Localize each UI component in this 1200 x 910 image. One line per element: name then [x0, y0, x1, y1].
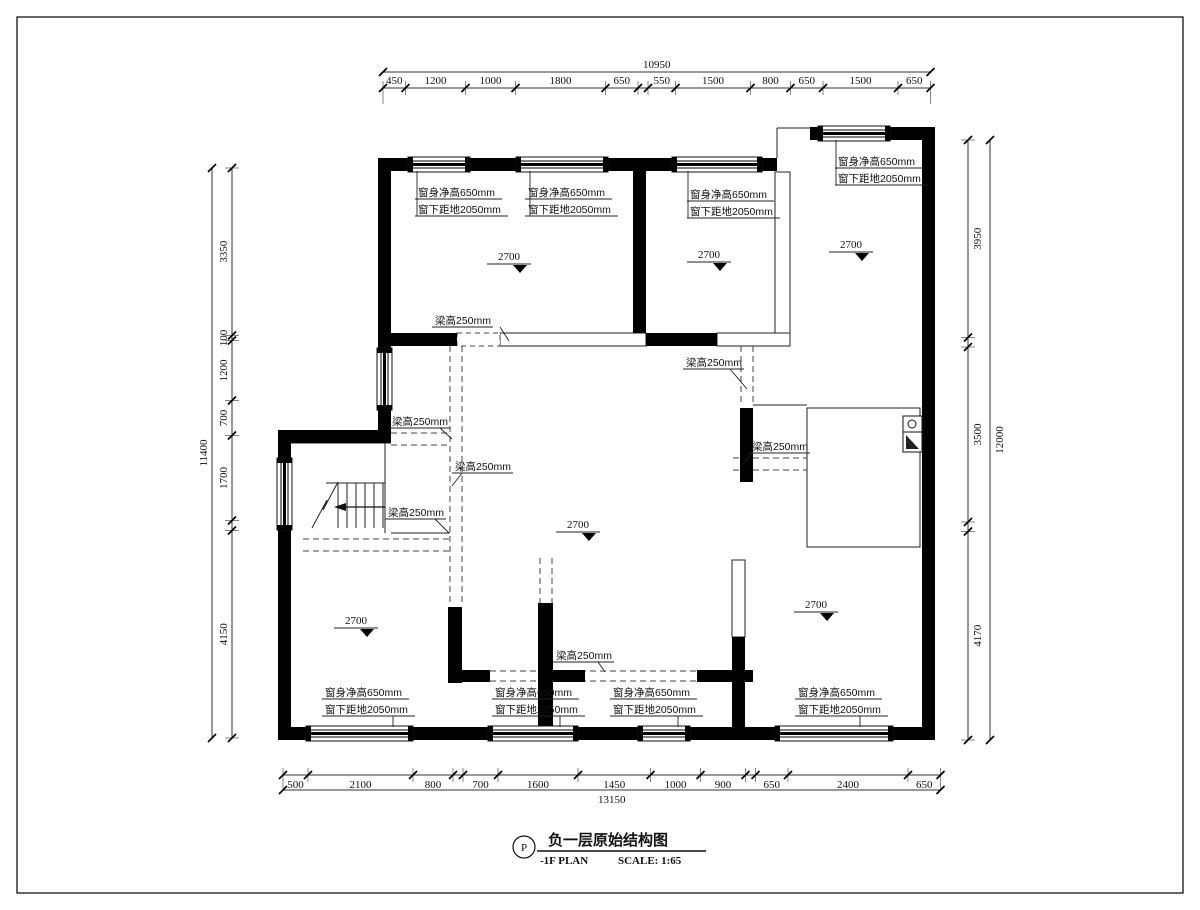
- dim-segment-label: 800: [425, 779, 442, 791]
- window-cap: [757, 157, 762, 172]
- window-cap: [277, 525, 292, 530]
- dimension-chain: 5002100800700160014501000900650240065013…: [279, 768, 945, 806]
- window-height-note: 窗身净高650mm: [495, 686, 572, 699]
- window-note: 窗身净高650mm窗下距地2050mm: [322, 686, 415, 716]
- dim-segment-label: 3950: [972, 227, 984, 250]
- window-symbol: [408, 157, 470, 172]
- elevation-triangle: [820, 613, 834, 621]
- beam-height-note: 梁高250mm: [686, 356, 742, 369]
- dim-segment-label: 1700: [218, 467, 230, 490]
- window-height-note: 窗身净高650mm: [798, 686, 875, 699]
- elevation-marker: 2700: [687, 249, 731, 271]
- wall: [578, 727, 638, 740]
- fixture-box: [903, 416, 922, 432]
- window-symbol: [377, 348, 392, 410]
- wall: [278, 443, 291, 458]
- dimension-chain: 39503500417012000: [961, 136, 1006, 744]
- window-sill-note: 窗下距地2050mm: [613, 703, 696, 716]
- stair-arrow-head: [334, 503, 346, 511]
- window-cap: [488, 726, 493, 741]
- window-height-note: 窗身净高650mm: [690, 188, 767, 201]
- dim-segment-label: 4170: [972, 624, 984, 647]
- note-leader: [452, 473, 462, 486]
- window-cap: [465, 157, 470, 172]
- wall: [553, 670, 585, 682]
- dim-segment-label: 4150: [218, 623, 230, 646]
- wall: [810, 127, 818, 140]
- window-cap: [408, 157, 413, 172]
- wall: [378, 333, 457, 346]
- wall: [633, 171, 646, 333]
- beam-note: 梁高250mm: [553, 649, 614, 672]
- dim-segment-label: 550: [654, 75, 671, 87]
- wall: [378, 171, 391, 348]
- window-note: 窗身净高650mm窗下距地2050mm: [795, 686, 888, 716]
- beam-note: 梁高250mm: [385, 506, 449, 533]
- elevation-marker: 2700: [487, 251, 531, 273]
- dim-segment-label: 1200: [218, 359, 230, 382]
- dim-segment-label: 500: [287, 779, 304, 791]
- dim-segment-label: 1200: [425, 75, 448, 87]
- ceiling-height-value: 2700: [805, 599, 828, 611]
- dim-segment-label: 650: [906, 75, 923, 87]
- window-note: 窗身净高650mm窗下距地2050mm: [525, 186, 618, 216]
- ceiling-height-value: 2700: [840, 239, 863, 251]
- dim-segment-label: 700: [472, 779, 489, 791]
- wall: [608, 158, 672, 171]
- window-note: 窗身净高650mm窗下距地2050mm: [415, 186, 508, 216]
- dim-segment-label: 650: [764, 779, 781, 791]
- dim-segment-label: 1000: [480, 75, 503, 87]
- window-cap: [516, 157, 521, 172]
- window-cap: [775, 726, 780, 741]
- thin-wall: [732, 560, 745, 637]
- wall: [922, 127, 935, 740]
- window-symbol: [638, 726, 690, 741]
- dim-segment-label: 3500: [972, 423, 984, 446]
- plan-title-cn: 负一层原始结构图: [548, 831, 668, 849]
- window-height-note: 窗身净高650mm: [418, 186, 495, 199]
- wall: [378, 410, 391, 433]
- window-height-note: 窗身净高650mm: [838, 155, 915, 168]
- dim-segment-label: 100: [218, 329, 230, 346]
- window-symbol: [672, 157, 762, 172]
- window-height-note: 窗身净高650mm: [325, 686, 402, 699]
- wall: [378, 158, 408, 171]
- sheet-border: [17, 17, 1183, 893]
- window-sill-note: 窗下距地2050mm: [838, 172, 921, 185]
- dim-segment-label: 800: [762, 75, 779, 87]
- wall: [278, 530, 291, 727]
- beam-height-note: 梁高250mm: [455, 460, 511, 473]
- dim-segment-label: 2400: [837, 779, 860, 791]
- elevation-triangle: [360, 629, 374, 637]
- window-cap: [685, 726, 690, 741]
- window-cap: [885, 126, 890, 141]
- dim-segment-label: 1600: [527, 779, 550, 791]
- elevation-triangle: [713, 263, 727, 271]
- window-symbol: [516, 157, 608, 172]
- beam-note: 梁高250mm: [683, 356, 747, 389]
- floor-plan-page: 4501200100018006505501500800650150065010…: [0, 0, 1200, 910]
- window-symbol: [775, 726, 893, 741]
- ceiling-height-value: 2700: [567, 519, 590, 531]
- beam-note: 梁高250mm: [389, 415, 452, 439]
- window-cap: [306, 726, 311, 741]
- staircase: [312, 482, 385, 528]
- window-sill-note: 窗下距地2050mm: [418, 203, 501, 216]
- thin-wall: [775, 172, 790, 333]
- window-symbol: [306, 726, 413, 741]
- dim-segment-label: 3350: [218, 240, 230, 263]
- dim-segment-label: 650: [916, 779, 933, 791]
- window-cap: [377, 348, 392, 353]
- dim-segment-label: 650: [614, 75, 631, 87]
- window-height-note: 窗身净高650mm: [613, 686, 690, 699]
- window-cap: [408, 726, 413, 741]
- window-cap: [277, 458, 292, 463]
- dim-total-label: 11400: [198, 439, 210, 467]
- beam-note: 梁高250mm: [452, 460, 513, 486]
- floor-plan-drawing: 4501200100018006505501500800650150065010…: [0, 0, 1200, 910]
- ceiling-height-value: 2700: [498, 251, 521, 263]
- dim-total-label: 10950: [643, 59, 671, 71]
- elevation-marker: 2700: [829, 239, 873, 261]
- wall: [278, 727, 306, 740]
- dim-segment-label: 2100: [350, 779, 373, 791]
- elevation-triangle: [582, 533, 596, 541]
- wall: [890, 127, 922, 140]
- window-cap: [377, 405, 392, 410]
- window-note: 窗身净高650mm窗下距地2050mm: [610, 686, 703, 716]
- window-sill-note: 窗下距地2050mm: [690, 205, 773, 218]
- dim-segment-label: 450: [386, 75, 403, 87]
- walls-layer: [278, 127, 935, 740]
- window-note: 窗身净高650mm窗下距地2050mm: [835, 155, 928, 185]
- window-symbol: [277, 458, 292, 530]
- dimension-chain: 335010012007001700415011400: [198, 164, 239, 742]
- dim-segment-label: 1000: [665, 779, 688, 791]
- window-sill-note: 窗下距地2050mm: [798, 703, 881, 716]
- dim-segment-label: 1500: [702, 75, 725, 87]
- dim-segment-label: 1800: [550, 75, 573, 87]
- wall: [732, 637, 745, 740]
- beam-height-note: 梁高250mm: [752, 440, 808, 453]
- wall: [646, 333, 717, 346]
- beam-opening: [457, 333, 500, 346]
- note-leader: [435, 519, 449, 533]
- window-note: 窗身净高650mm窗下距地2050mm: [687, 188, 780, 218]
- window-symbol: [488, 726, 578, 741]
- plan-scale-label: SCALE: 1:65: [618, 855, 682, 867]
- wall: [893, 727, 935, 740]
- ceiling-height-value: 2700: [698, 249, 721, 261]
- elevation-triangle: [855, 253, 869, 261]
- beam-height-note: 梁高250mm: [435, 314, 491, 327]
- thin-wall: [717, 333, 790, 346]
- note-leader: [730, 369, 747, 389]
- dimension-chain: 4501200100018006505501500800650150065010…: [379, 59, 935, 104]
- window-sill-note: 窗下距地2050mm: [528, 203, 611, 216]
- dim-segment-label: 700: [218, 409, 230, 426]
- dim-segment-label: 900: [715, 779, 732, 791]
- window-cap: [603, 157, 608, 172]
- wall: [470, 158, 516, 171]
- beam-height-note: 梁高250mm: [392, 415, 448, 428]
- ceiling-height-value: 2700: [345, 615, 368, 627]
- note-leader: [500, 327, 509, 341]
- elevation-marker: 2700: [794, 599, 838, 621]
- window-cap: [672, 157, 677, 172]
- wall: [413, 727, 488, 740]
- wall: [762, 158, 777, 171]
- dim-segment-label: 1500: [850, 75, 873, 87]
- dim-total-label: 13150: [598, 794, 626, 806]
- stair-break-line: [312, 482, 338, 528]
- plan-title-en: -1F PLAN: [540, 855, 588, 867]
- elevation-marker: 2700: [334, 615, 378, 637]
- wall: [697, 670, 753, 682]
- window-cap: [638, 726, 643, 741]
- window-sill-note: 窗下距地2050mm: [325, 703, 408, 716]
- window-cap: [888, 726, 893, 741]
- wall-fixture-icon: [903, 416, 922, 452]
- dim-segment-label: 1450: [603, 779, 626, 791]
- beam-height-note: 梁高250mm: [388, 506, 444, 519]
- dim-segment-label: 650: [799, 75, 816, 87]
- title-block: P 负一层原始结构图 -1F PLAN SCALE: 1:65: [513, 831, 706, 867]
- window-height-note: 窗身净高650mm: [528, 186, 605, 199]
- beam-height-note: 梁高250mm: [556, 649, 612, 662]
- window-sill-note: 窗下距地2050mm: [495, 703, 578, 716]
- thin-wall: [500, 333, 646, 346]
- wall: [448, 670, 490, 682]
- dim-total-label: 12000: [994, 426, 1006, 454]
- window-symbol: [818, 126, 890, 141]
- plan-tag-letter: P: [521, 842, 527, 854]
- elevation-marker: 2700: [556, 519, 600, 541]
- window-cap: [573, 726, 578, 741]
- wall: [278, 430, 391, 443]
- wall: [538, 603, 553, 740]
- window-cap: [818, 126, 823, 141]
- elevation-triangle: [513, 265, 527, 273]
